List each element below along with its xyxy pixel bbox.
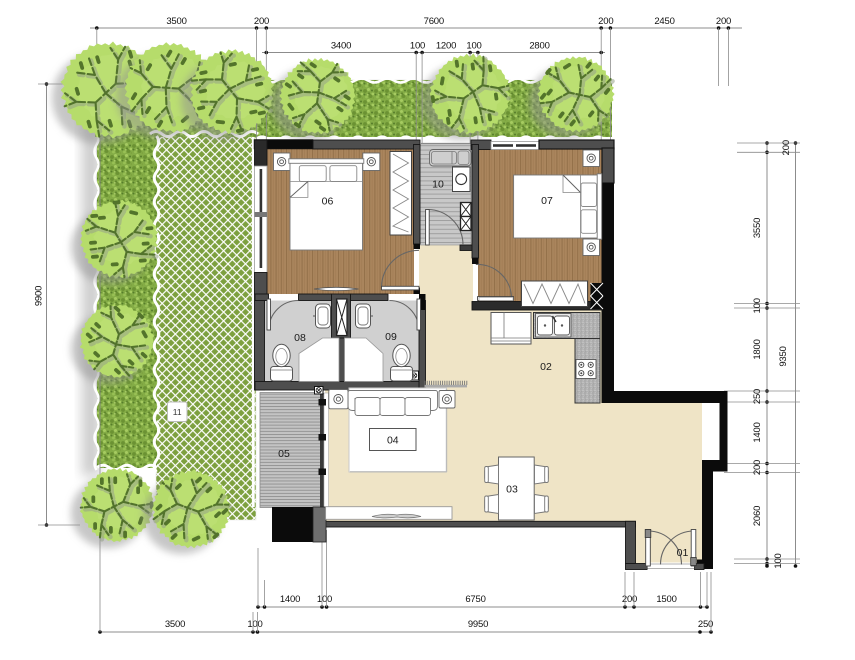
svg-text:06: 06: [322, 196, 334, 208]
svg-text:200: 200: [254, 16, 269, 27]
svg-text:100: 100: [410, 41, 425, 52]
svg-text:1200: 1200: [436, 41, 456, 52]
svg-text:1400: 1400: [752, 422, 763, 442]
svg-text:10: 10: [432, 179, 444, 191]
svg-text:100: 100: [247, 619, 262, 630]
svg-text:05: 05: [278, 448, 290, 460]
svg-text:2450: 2450: [654, 16, 674, 27]
svg-text:1400: 1400: [280, 594, 300, 605]
svg-text:03: 03: [506, 484, 518, 496]
svg-text:200: 200: [781, 140, 792, 155]
svg-text:3500: 3500: [165, 619, 185, 630]
svg-text:200: 200: [622, 594, 637, 605]
svg-text:02: 02: [540, 361, 552, 373]
svg-text:100: 100: [752, 298, 763, 313]
svg-text:1800: 1800: [752, 339, 763, 359]
svg-text:9950: 9950: [468, 619, 488, 630]
svg-text:100: 100: [773, 553, 784, 568]
svg-text:100: 100: [466, 41, 481, 52]
svg-text:1500: 1500: [656, 594, 676, 605]
svg-text:08: 08: [294, 332, 306, 344]
svg-text:100: 100: [317, 594, 332, 605]
svg-text:9350: 9350: [778, 346, 789, 366]
svg-text:200: 200: [598, 16, 613, 27]
svg-text:200: 200: [752, 460, 763, 475]
svg-text:6750: 6750: [465, 594, 485, 605]
svg-text:3500: 3500: [166, 16, 186, 27]
svg-text:01: 01: [677, 547, 689, 559]
svg-text:2060: 2060: [752, 506, 763, 526]
svg-text:09: 09: [385, 331, 397, 343]
svg-text:2800: 2800: [529, 41, 549, 52]
svg-text:200: 200: [716, 16, 731, 27]
svg-text:3550: 3550: [752, 218, 763, 238]
svg-text:9900: 9900: [34, 286, 45, 306]
svg-text:11: 11: [173, 407, 182, 417]
svg-text:04: 04: [387, 435, 399, 447]
svg-text:7600: 7600: [424, 16, 444, 27]
svg-text:3400: 3400: [331, 41, 351, 52]
svg-text:250: 250: [752, 389, 763, 404]
svg-text:07: 07: [541, 195, 553, 207]
